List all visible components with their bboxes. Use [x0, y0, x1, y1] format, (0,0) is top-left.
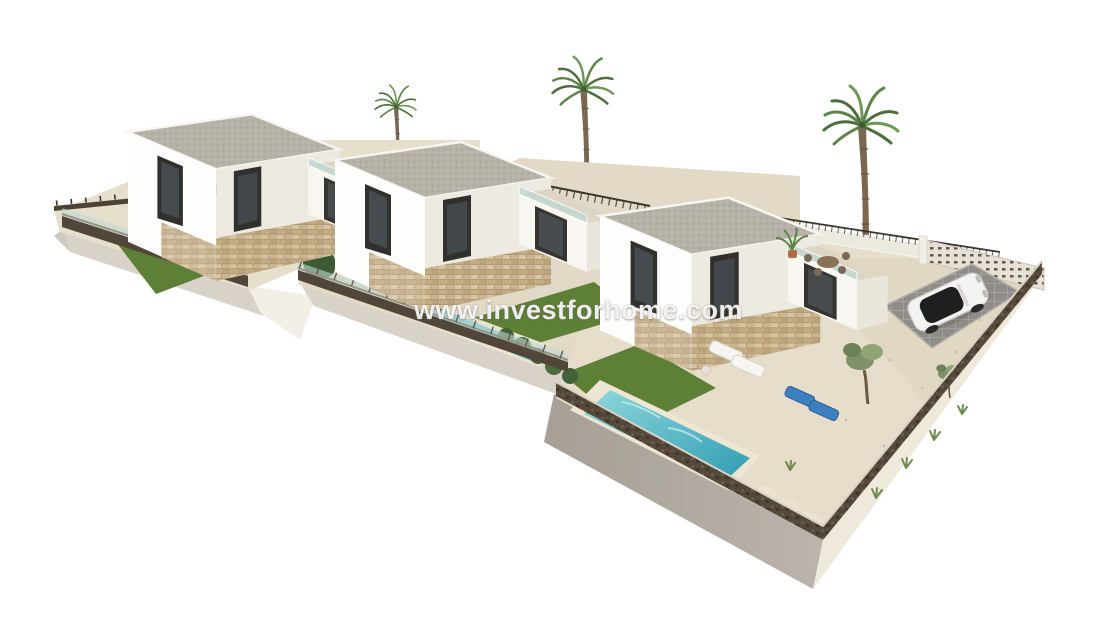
- palm-tree-3: [824, 86, 898, 244]
- render-canvas: www.investforhome.com: [0, 0, 1110, 626]
- villa-render-illustration: [0, 0, 1110, 626]
- breeze-wall-pillar: [919, 236, 927, 264]
- patio-side-table: [702, 366, 711, 375]
